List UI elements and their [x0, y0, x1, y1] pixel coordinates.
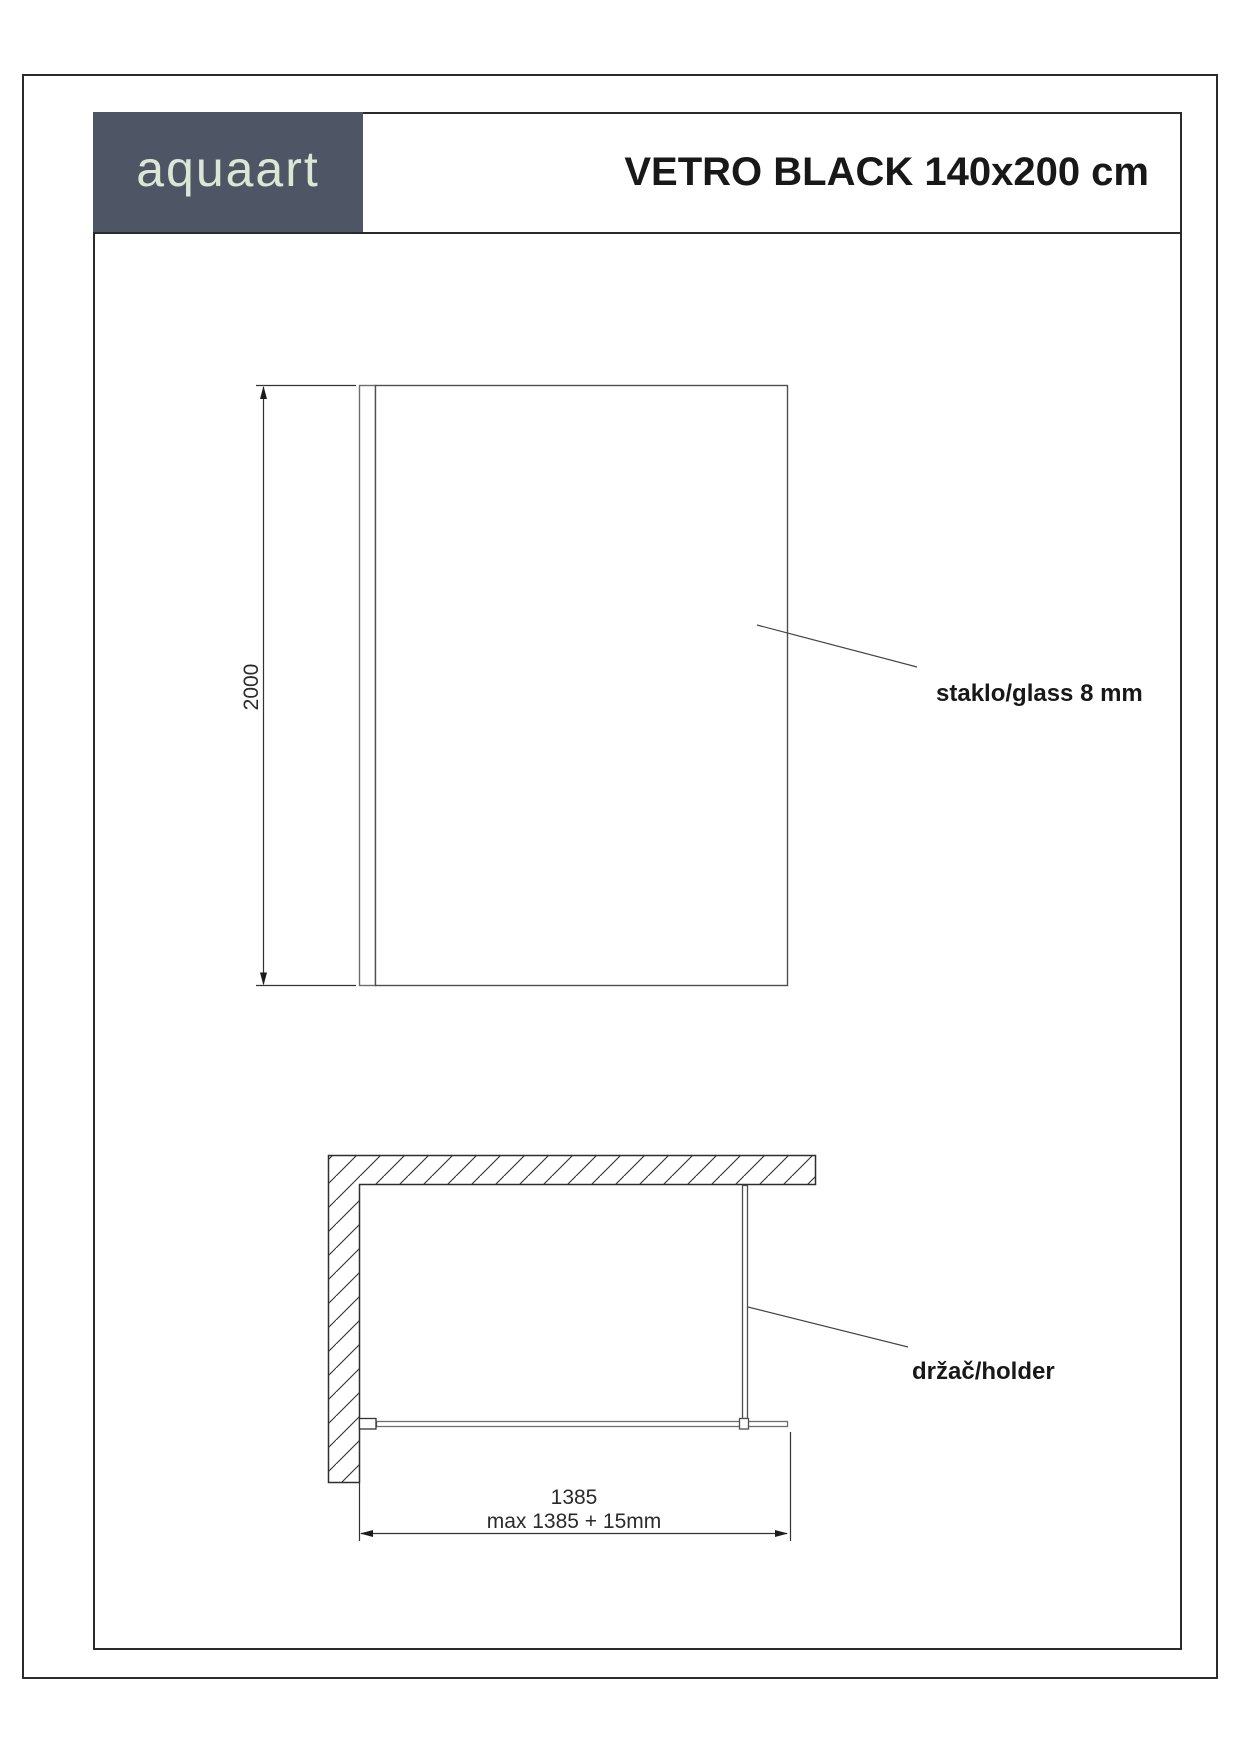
leader-line-holder: [748, 1307, 908, 1347]
glass-panel-front: [376, 386, 788, 986]
dimension-arrow-down: [260, 973, 267, 986]
wall-anchor-plan: [360, 1419, 377, 1430]
width-dimension-max-text: max 1385 + 15mm: [359, 1511, 789, 1533]
holder-bar-plan: [743, 1186, 748, 1419]
drawing-sheet: aquaart VETRO BLACK 140x200 cm: [0, 0, 1241, 1755]
holder-foot-plan: [740, 1419, 749, 1430]
glass-panel-plan: [377, 1422, 788, 1427]
height-dimension-text: 2000: [240, 642, 264, 732]
wall-profile-front: [360, 386, 376, 986]
holder-label: držač/holder: [912, 1359, 1055, 1385]
dimension-2000: [256, 386, 356, 986]
width-dimension-text: 1385: [359, 1487, 789, 1509]
glass-label: staklo/glass 8 mm: [936, 681, 1143, 707]
dimension-arrow-up: [260, 386, 267, 399]
